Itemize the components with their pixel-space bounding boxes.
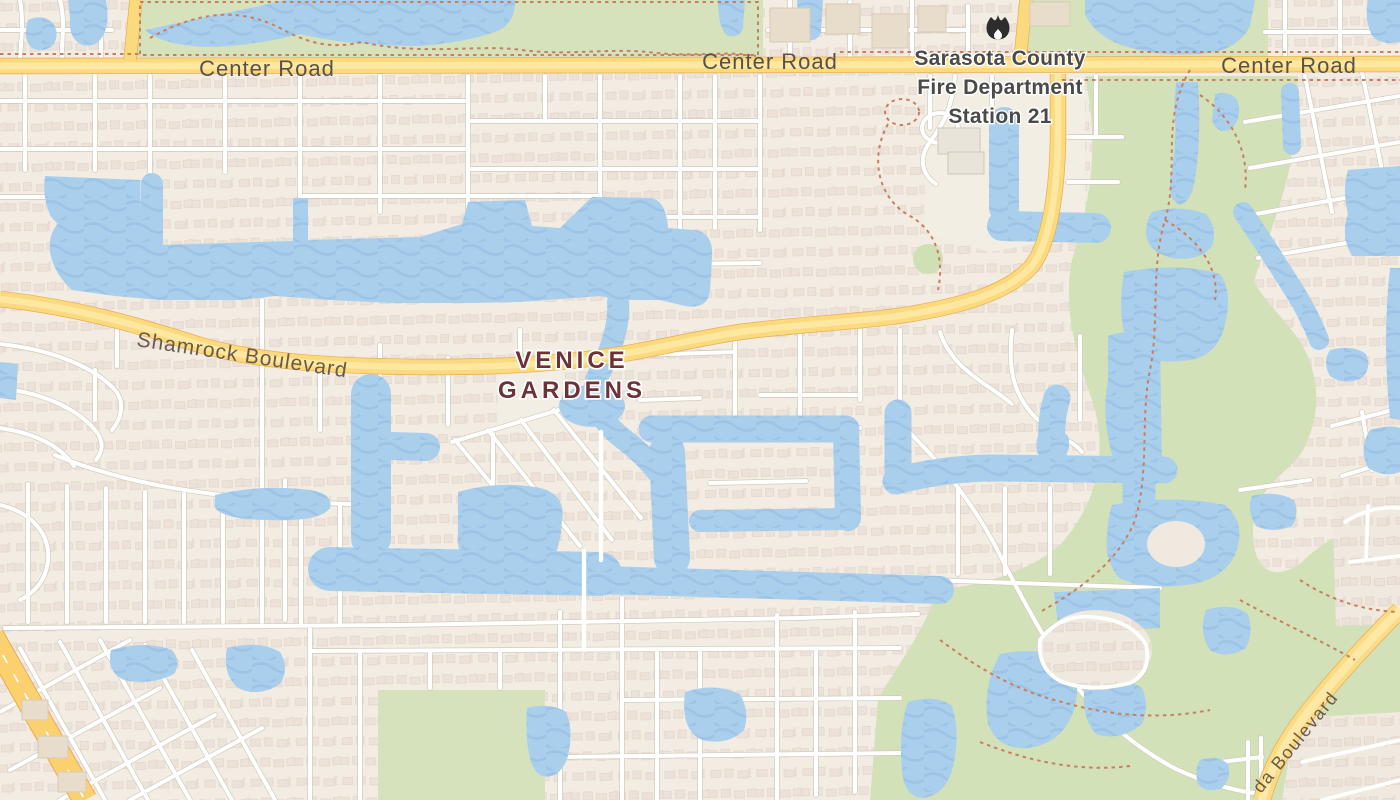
svg-text:Center Road: Center Road — [702, 49, 838, 74]
svg-text:Center Road: Center Road — [1221, 53, 1357, 78]
svg-text:VENICE: VENICE — [515, 347, 628, 374]
svg-text:Station 21: Station 21 — [948, 105, 1051, 128]
svg-text:Sarasota County: Sarasota County — [914, 47, 1085, 70]
svg-text:Fire Department: Fire Department — [917, 76, 1083, 99]
svg-text:GARDENS: GARDENS — [498, 377, 646, 404]
svg-text:Center Road: Center Road — [199, 56, 335, 81]
